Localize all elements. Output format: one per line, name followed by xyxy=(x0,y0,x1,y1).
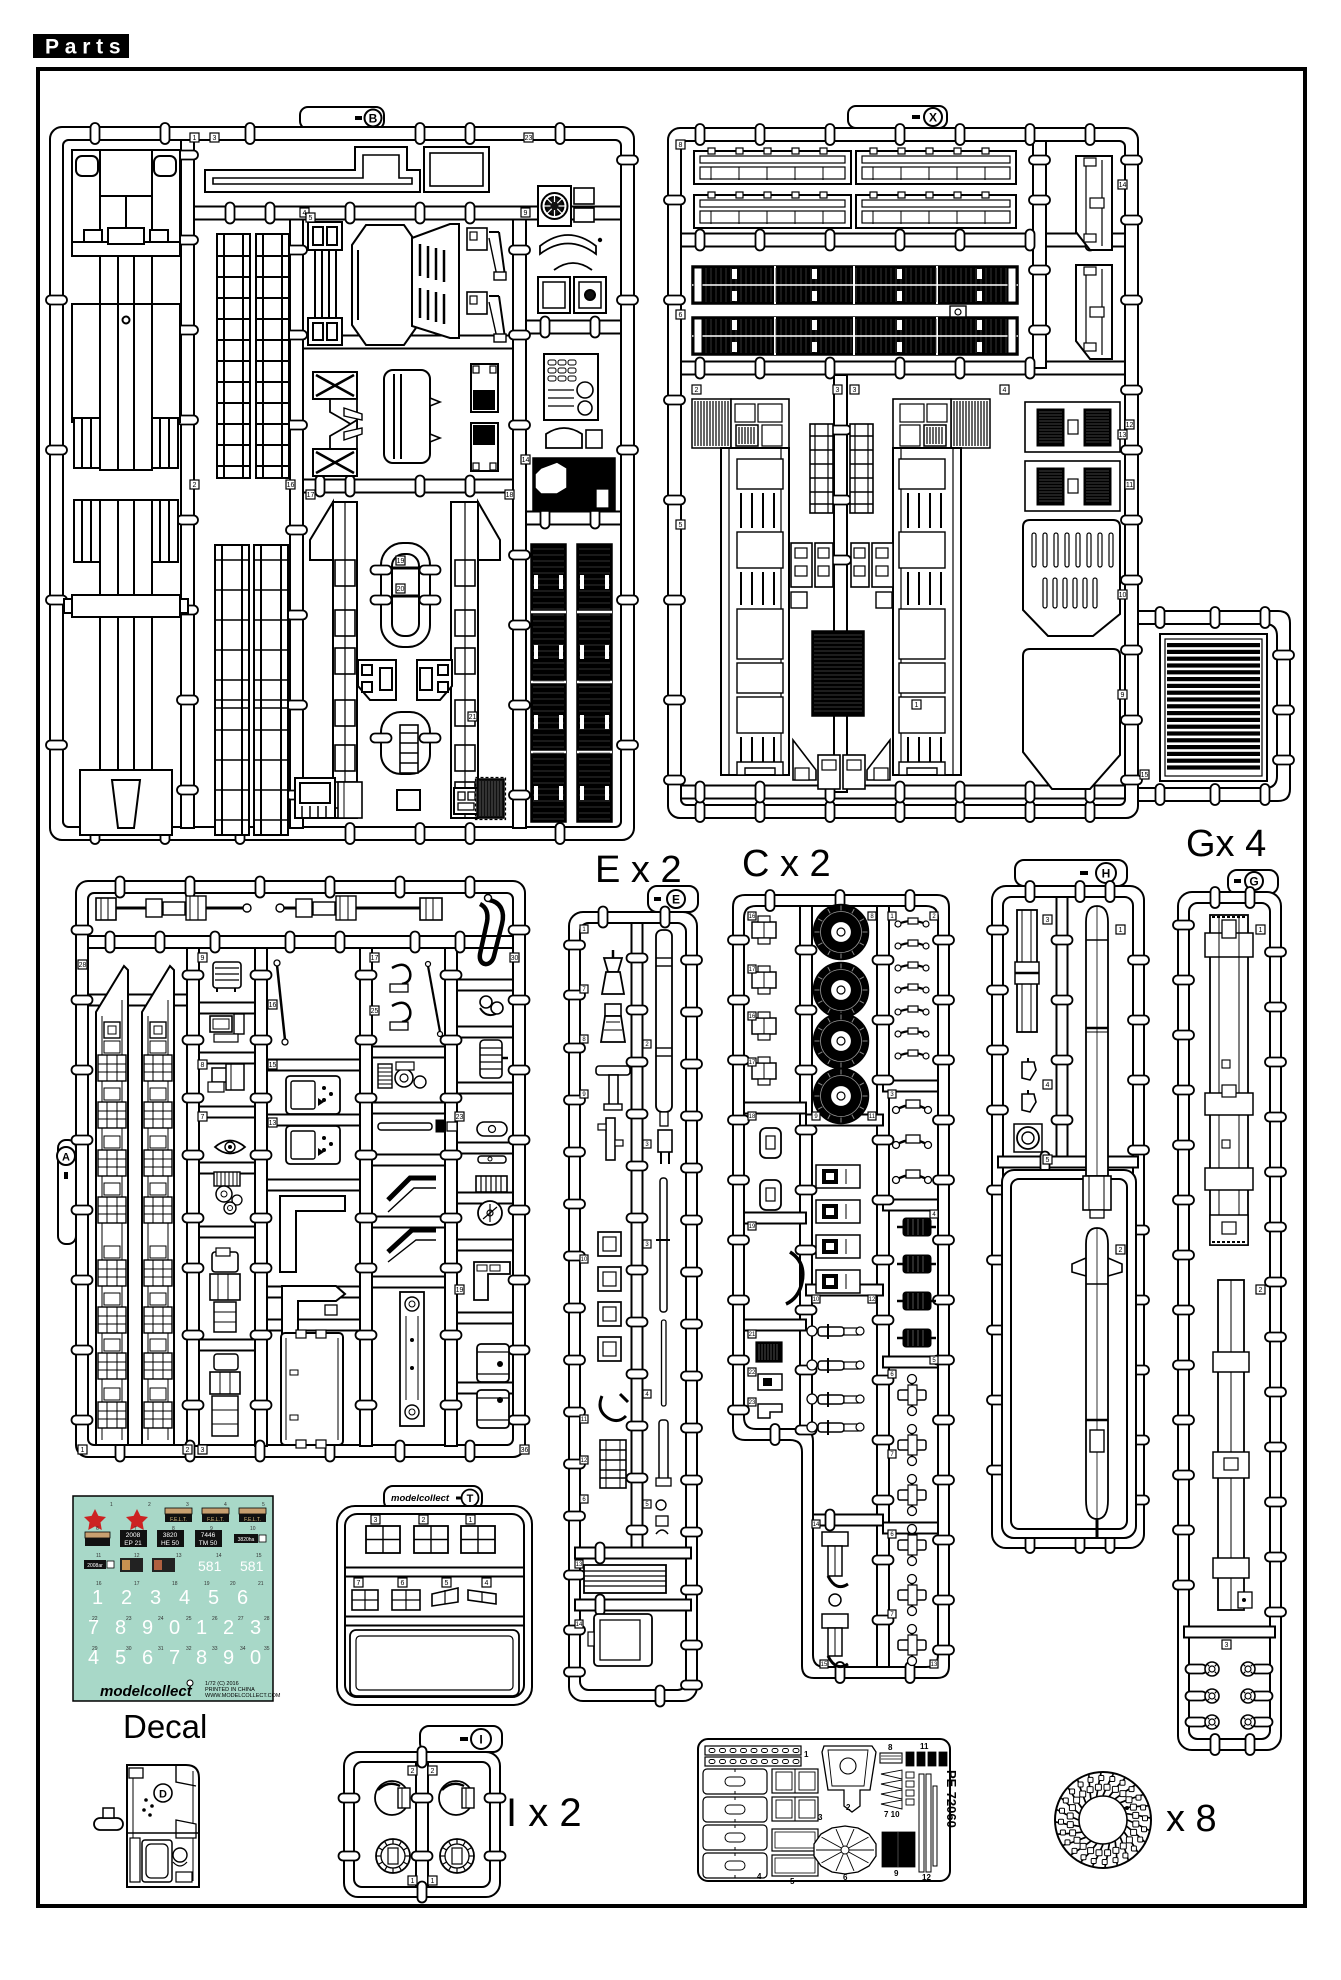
svg-text:10: 10 xyxy=(813,1297,820,1303)
svg-text:6: 6 xyxy=(401,1580,405,1587)
svg-text:PE-72060: PE-72060 xyxy=(944,1770,959,1828)
svg-text:3: 3 xyxy=(201,1447,205,1454)
svg-text:23: 23 xyxy=(749,1400,756,1406)
svg-text:22: 22 xyxy=(92,1616,98,1622)
svg-text:7: 7 xyxy=(134,1526,137,1532)
svg-text:14: 14 xyxy=(216,1553,222,1559)
svg-text:1: 1 xyxy=(193,135,197,142)
svg-text:4: 4 xyxy=(179,1587,190,1609)
svg-text:2008: 2008 xyxy=(126,1532,141,1539)
svg-text:19: 19 xyxy=(397,558,405,565)
svg-text:14: 14 xyxy=(576,1622,583,1628)
svg-text:17: 17 xyxy=(749,1060,756,1066)
svg-text:18: 18 xyxy=(506,492,514,499)
svg-text:17: 17 xyxy=(307,492,315,499)
svg-text:25: 25 xyxy=(186,1616,192,1622)
svg-text:1: 1 xyxy=(196,1617,207,1639)
svg-text:10: 10 xyxy=(1119,592,1127,599)
svg-text:9: 9 xyxy=(894,1869,899,1878)
svg-text:23: 23 xyxy=(456,1114,464,1121)
svg-text:0: 0 xyxy=(250,1647,261,1669)
svg-text:17: 17 xyxy=(371,955,379,962)
svg-text:28: 28 xyxy=(79,962,87,969)
svg-text:5: 5 xyxy=(115,1647,126,1669)
svg-text:2: 2 xyxy=(431,1768,435,1775)
svg-text:5: 5 xyxy=(445,1580,449,1587)
svg-text:C x 2: C x 2 xyxy=(742,843,831,885)
svg-text:10: 10 xyxy=(250,1526,256,1532)
svg-text:31: 31 xyxy=(158,1646,164,1652)
svg-text:8: 8 xyxy=(679,142,683,149)
svg-text:2: 2 xyxy=(193,482,197,489)
svg-text:F.E.L.T.: F.E.L.T. xyxy=(244,1517,261,1523)
svg-text:7 10: 7 10 xyxy=(884,1810,900,1819)
svg-text:4: 4 xyxy=(485,1580,489,1587)
svg-text:1: 1 xyxy=(1259,927,1263,934)
svg-text:2: 2 xyxy=(1259,1287,1263,1294)
svg-text:30: 30 xyxy=(126,1646,132,1652)
svg-text:16: 16 xyxy=(96,1581,102,1587)
svg-text:11: 11 xyxy=(869,1114,876,1120)
svg-text:P a r t s: P a r t s xyxy=(45,36,123,59)
svg-text:5: 5 xyxy=(262,1502,265,1508)
svg-text:1: 1 xyxy=(1119,927,1123,934)
svg-text:3: 3 xyxy=(213,135,217,142)
svg-text:21: 21 xyxy=(749,1332,756,1338)
svg-text:modelcollect: modelcollect xyxy=(391,1493,450,1504)
svg-text:14: 14 xyxy=(522,457,530,464)
svg-text:17: 17 xyxy=(749,967,756,973)
svg-text:4: 4 xyxy=(1003,387,1007,394)
svg-text:3: 3 xyxy=(374,1517,378,1524)
svg-text:3: 3 xyxy=(150,1587,161,1609)
svg-text:1: 1 xyxy=(110,1502,113,1508)
svg-text:4: 4 xyxy=(757,1872,762,1881)
svg-text:13: 13 xyxy=(176,1553,182,1559)
svg-text:0: 0 xyxy=(169,1617,180,1639)
svg-text:9: 9 xyxy=(1121,692,1125,699)
svg-text:13: 13 xyxy=(931,1662,938,1668)
svg-text:8: 8 xyxy=(201,1062,205,1069)
svg-text:2: 2 xyxy=(411,1768,415,1775)
svg-text:11: 11 xyxy=(920,1742,929,1751)
svg-text:WWW.MODELCOLLECT.COM: WWW.MODELCOLLECT.COM xyxy=(205,1693,281,1699)
svg-text:9: 9 xyxy=(524,210,528,217)
svg-text:3820: 3820 xyxy=(163,1532,178,1539)
svg-text:20: 20 xyxy=(230,1581,236,1587)
svg-text:1: 1 xyxy=(411,1878,415,1885)
svg-text:2: 2 xyxy=(695,387,699,394)
svg-text:7: 7 xyxy=(201,1114,205,1121)
svg-text:15: 15 xyxy=(821,1662,828,1668)
svg-text:12: 12 xyxy=(581,1458,588,1464)
svg-text:2008ar: 2008ar xyxy=(87,1563,103,1569)
svg-text:12: 12 xyxy=(1126,422,1134,429)
svg-text:15: 15 xyxy=(269,1062,277,1069)
svg-text:6: 6 xyxy=(843,1873,848,1882)
svg-text:5: 5 xyxy=(1046,1157,1050,1164)
svg-text:34: 34 xyxy=(240,1646,246,1652)
svg-text:2: 2 xyxy=(223,1617,234,1639)
svg-text:17: 17 xyxy=(134,1581,140,1587)
svg-text:3: 3 xyxy=(1225,1642,1229,1649)
svg-text:X: X xyxy=(929,111,937,125)
svg-text:4: 4 xyxy=(1046,1082,1050,1089)
svg-text:I x 2: I x 2 xyxy=(506,1791,582,1835)
svg-text:T: T xyxy=(467,1493,474,1505)
svg-text:HE 50: HE 50 xyxy=(161,1540,179,1547)
svg-text:B: B xyxy=(369,112,378,126)
svg-text:36: 36 xyxy=(521,1447,529,1454)
svg-text:20: 20 xyxy=(397,586,405,593)
svg-text:29: 29 xyxy=(92,1646,98,1652)
svg-text:7: 7 xyxy=(169,1647,180,1669)
svg-text:19: 19 xyxy=(749,1224,756,1230)
svg-text:35: 35 xyxy=(264,1646,270,1652)
svg-text:5: 5 xyxy=(309,215,313,222)
svg-text:18: 18 xyxy=(749,1114,756,1120)
svg-text:9: 9 xyxy=(210,1526,213,1532)
svg-text:E: E xyxy=(672,893,680,907)
svg-text:8: 8 xyxy=(115,1617,126,1639)
svg-text:3: 3 xyxy=(186,1502,189,1508)
svg-text:3: 3 xyxy=(250,1617,261,1639)
svg-text:16: 16 xyxy=(287,482,295,489)
svg-text:4: 4 xyxy=(224,1502,227,1508)
svg-text:9: 9 xyxy=(142,1617,153,1639)
svg-text:581: 581 xyxy=(240,1558,264,1574)
svg-text:5: 5 xyxy=(790,1877,795,1886)
svg-text:3: 3 xyxy=(1046,917,1050,924)
svg-text:Decal: Decal xyxy=(123,1708,207,1745)
svg-text:2: 2 xyxy=(422,1517,426,1524)
svg-text:16: 16 xyxy=(269,1002,277,1009)
svg-text:14: 14 xyxy=(813,1522,820,1528)
svg-text:3: 3 xyxy=(836,387,840,394)
svg-text:9: 9 xyxy=(223,1647,234,1669)
svg-text:26: 26 xyxy=(212,1616,218,1622)
svg-text:23: 23 xyxy=(525,135,533,142)
svg-text:5: 5 xyxy=(208,1587,219,1609)
svg-text:2: 2 xyxy=(186,1447,190,1454)
svg-text:2: 2 xyxy=(1119,1247,1123,1254)
svg-text:13: 13 xyxy=(269,1120,277,1127)
svg-text:EP 21: EP 21 xyxy=(124,1540,142,1547)
svg-text:12: 12 xyxy=(922,1873,931,1882)
svg-text:F.E.L.T.: F.E.L.T. xyxy=(170,1517,187,1523)
svg-text:1: 1 xyxy=(804,1750,809,1759)
svg-text:1: 1 xyxy=(469,1517,473,1524)
svg-text:10: 10 xyxy=(581,1257,588,1263)
svg-text:8: 8 xyxy=(888,1743,893,1752)
svg-text:12: 12 xyxy=(869,1297,876,1303)
svg-text:11: 11 xyxy=(96,1553,101,1559)
svg-text:F.E.L.T.: F.E.L.T. xyxy=(207,1517,224,1523)
svg-text:14: 14 xyxy=(1119,182,1127,189)
svg-text:3: 3 xyxy=(853,387,857,394)
svg-text:18: 18 xyxy=(172,1581,178,1587)
svg-text:33: 33 xyxy=(212,1646,218,1652)
svg-text:Gx 4: Gx 4 xyxy=(1186,823,1266,865)
svg-text:TM 50: TM 50 xyxy=(199,1540,218,1547)
svg-text:16: 16 xyxy=(749,914,756,920)
svg-text:5: 5 xyxy=(679,522,683,529)
svg-text:2: 2 xyxy=(846,1803,851,1812)
svg-text:16: 16 xyxy=(749,1014,756,1020)
svg-text:12: 12 xyxy=(134,1553,140,1559)
svg-text:1: 1 xyxy=(92,1587,103,1609)
svg-text:3820ha: 3820ha xyxy=(238,1537,255,1543)
svg-text:9: 9 xyxy=(201,955,205,962)
svg-text:D: D xyxy=(159,1789,167,1801)
svg-text:I: I xyxy=(479,1733,482,1747)
svg-text:1: 1 xyxy=(81,1447,85,1454)
svg-text:25: 25 xyxy=(371,1008,379,1015)
svg-text:A: A xyxy=(62,1152,70,1164)
svg-text:24: 24 xyxy=(158,1616,164,1622)
svg-text:E x 2: E x 2 xyxy=(595,849,682,891)
svg-text:11: 11 xyxy=(581,1417,588,1423)
svg-text:11: 11 xyxy=(1126,482,1133,489)
svg-text:19: 19 xyxy=(204,1581,210,1587)
svg-text:21: 21 xyxy=(258,1581,264,1587)
svg-text:19: 19 xyxy=(456,1287,464,1294)
svg-text:8: 8 xyxy=(196,1647,207,1669)
svg-text:21: 21 xyxy=(469,714,477,721)
svg-text:13: 13 xyxy=(1119,432,1127,439)
svg-text:22: 22 xyxy=(749,1370,756,1376)
svg-text:28: 28 xyxy=(264,1616,270,1622)
svg-text:6: 6 xyxy=(679,312,683,319)
svg-text:13: 13 xyxy=(576,1562,583,1568)
svg-text:3: 3 xyxy=(818,1813,823,1822)
svg-text:581: 581 xyxy=(198,1558,222,1574)
svg-text:1: 1 xyxy=(431,1878,435,1885)
svg-text:6: 6 xyxy=(237,1587,248,1609)
svg-text:2: 2 xyxy=(148,1502,151,1508)
svg-text:32: 32 xyxy=(186,1646,192,1652)
svg-text:15: 15 xyxy=(1141,772,1149,779)
svg-text:15: 15 xyxy=(256,1553,262,1559)
svg-text:2: 2 xyxy=(121,1587,132,1609)
svg-text:modelcollect: modelcollect xyxy=(100,1683,193,1700)
svg-text:23: 23 xyxy=(126,1616,132,1622)
svg-text:27: 27 xyxy=(238,1616,244,1622)
svg-text:H: H xyxy=(1102,867,1111,881)
svg-text:1: 1 xyxy=(915,702,919,709)
svg-text:x 8: x 8 xyxy=(1166,1798,1217,1840)
svg-text:6: 6 xyxy=(142,1647,153,1669)
svg-text:7446: 7446 xyxy=(201,1532,216,1539)
svg-text:30: 30 xyxy=(511,955,519,962)
svg-text:7: 7 xyxy=(357,1580,361,1587)
svg-text:6: 6 xyxy=(96,1526,99,1532)
svg-text:8: 8 xyxy=(172,1526,175,1532)
